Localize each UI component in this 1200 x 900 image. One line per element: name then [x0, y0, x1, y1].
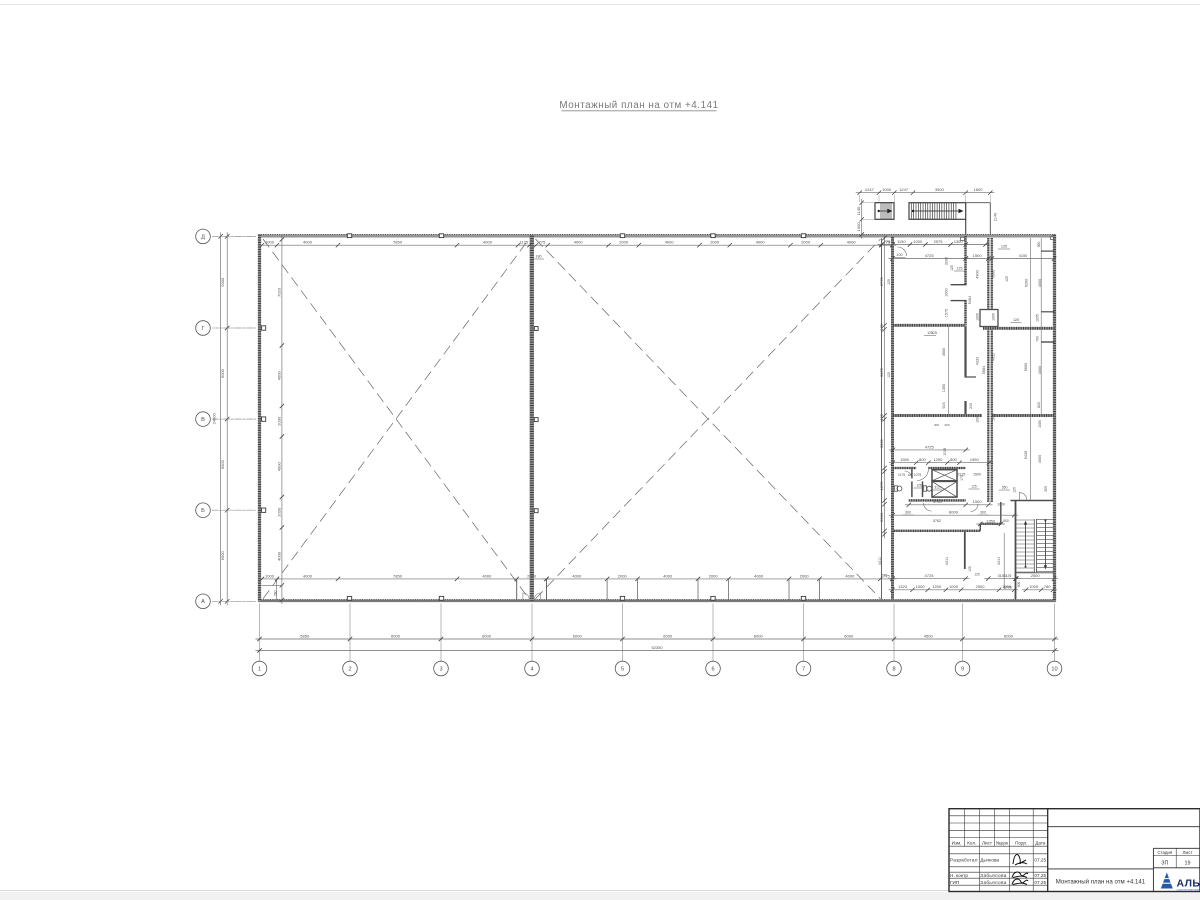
svg-text:243: 243 [969, 403, 973, 409]
svg-text:А: А [201, 599, 205, 605]
svg-text:2140: 2140 [993, 213, 997, 221]
svg-text:1000: 1000 [265, 240, 275, 245]
svg-text:125: 125 [1001, 245, 1007, 249]
svg-text:1975: 1975 [879, 481, 884, 491]
svg-text:Подп.: Подп. [1015, 840, 1027, 845]
svg-text:4000: 4000 [276, 462, 281, 472]
svg-text:6000: 6000 [391, 633, 401, 638]
svg-text:1095: 1095 [1035, 314, 1039, 322]
svg-text:125: 125 [974, 573, 980, 577]
svg-text:800: 800 [1017, 582, 1021, 588]
svg-text:1250: 1250 [933, 457, 943, 462]
svg-text:Кол.: Кол. [967, 840, 976, 845]
svg-text:1350: 1350 [986, 518, 996, 523]
svg-text:125: 125 [907, 473, 912, 477]
svg-text:5464: 5464 [968, 296, 972, 304]
svg-text:4000: 4000 [303, 240, 313, 245]
svg-text:775: 775 [881, 574, 887, 578]
svg-text:6000: 6000 [1004, 633, 1014, 638]
svg-text:7020: 7020 [276, 287, 281, 297]
svg-text:125: 125 [971, 485, 977, 489]
svg-text:1000: 1000 [992, 313, 996, 321]
svg-text:07.25: 07.25 [1034, 880, 1046, 885]
svg-text:4000: 4000 [303, 573, 313, 578]
svg-text:1140: 1140 [856, 206, 861, 215]
svg-text:4000: 4000 [847, 240, 857, 245]
svg-text:Изм.: Изм. [952, 840, 962, 845]
svg-text:2000: 2000 [527, 573, 537, 578]
svg-text:125: 125 [916, 484, 922, 488]
svg-text:2000: 2000 [618, 573, 628, 578]
svg-text:125: 125 [1005, 276, 1009, 282]
svg-text:№док: №док [996, 840, 1009, 845]
svg-text:3750: 3750 [933, 499, 943, 504]
svg-text:Разработал: Разработал [950, 858, 978, 863]
svg-text:6000: 6000 [844, 633, 854, 638]
svg-text:24000: 24000 [212, 413, 217, 425]
svg-text:1000: 1000 [1029, 584, 1039, 589]
svg-text:1175: 1175 [898, 473, 905, 477]
svg-text:300: 300 [934, 423, 939, 427]
svg-text:7: 7 [802, 666, 805, 672]
svg-text:1550: 1550 [900, 457, 910, 462]
svg-text:5875: 5875 [879, 367, 884, 377]
svg-text:4000: 4000 [665, 240, 675, 245]
svg-text:1200: 1200 [932, 584, 942, 589]
svg-text:1000: 1000 [913, 239, 923, 244]
svg-text:1075: 1075 [914, 473, 922, 477]
svg-text:1500: 1500 [973, 253, 983, 258]
svg-text:6000: 6000 [573, 633, 583, 638]
svg-text:Лист: Лист [1183, 850, 1194, 855]
svg-text:1080: 1080 [1038, 420, 1042, 428]
svg-text:В: В [201, 417, 205, 423]
svg-text:3339: 3339 [879, 438, 884, 448]
svg-text:4150: 4150 [1019, 254, 1027, 258]
svg-text:125: 125 [950, 265, 954, 271]
svg-text:4725: 4725 [925, 253, 935, 258]
svg-text:52350: 52350 [651, 645, 663, 650]
svg-text:4725: 4725 [925, 444, 935, 449]
svg-text:1000: 1000 [992, 413, 996, 421]
svg-text:6000: 6000 [663, 633, 673, 638]
svg-text:5: 5 [621, 666, 624, 672]
svg-text:4000: 4000 [276, 371, 281, 381]
svg-text:4725: 4725 [925, 573, 935, 578]
svg-text:100: 100 [896, 253, 902, 257]
svg-text:3: 3 [439, 666, 442, 672]
svg-text:Дычкова: Дычкова [980, 858, 999, 863]
svg-text:5762: 5762 [933, 519, 941, 523]
svg-text:Дата: Дата [1035, 840, 1046, 845]
svg-text:Стадия: Стадия [1157, 850, 1172, 855]
svg-text:125: 125 [968, 566, 972, 572]
svg-text:10: 10 [1051, 666, 1057, 672]
svg-text:800: 800 [950, 457, 957, 462]
svg-text:6200: 6200 [1025, 279, 1029, 287]
svg-text:4332: 4332 [976, 357, 980, 365]
svg-text:820: 820 [1037, 402, 1041, 408]
svg-text:4900: 4900 [976, 270, 980, 278]
svg-text:1000: 1000 [976, 313, 980, 321]
svg-text:07.25: 07.25 [1034, 873, 1046, 878]
svg-text:2000: 2000 [710, 240, 720, 245]
svg-text:1125: 1125 [519, 240, 528, 245]
svg-text:4411: 4411 [878, 557, 882, 565]
svg-text:2000: 2000 [619, 240, 629, 245]
svg-text:1320: 1320 [898, 584, 908, 589]
svg-text:125: 125 [887, 372, 891, 378]
svg-text:4652: 4652 [992, 353, 996, 361]
svg-text:2030: 2030 [276, 416, 281, 426]
svg-text:125: 125 [1013, 487, 1017, 493]
svg-text:1000: 1000 [265, 573, 275, 578]
svg-text:300: 300 [980, 511, 986, 515]
svg-text:915: 915 [942, 402, 946, 408]
svg-text:300: 300 [944, 423, 949, 427]
svg-text:Лист: Лист [982, 840, 993, 845]
svg-text:4900: 4900 [992, 270, 996, 278]
svg-text:4000: 4000 [845, 573, 855, 578]
svg-text:125: 125 [879, 323, 884, 330]
svg-text:4411: 4411 [997, 557, 1001, 565]
svg-text:5439: 5439 [1024, 451, 1028, 459]
svg-text:2030: 2030 [276, 507, 281, 517]
svg-text:Забьялова: Забьялова [980, 880, 1006, 885]
svg-text:780: 780 [274, 590, 278, 596]
svg-text:4000: 4000 [276, 551, 281, 561]
svg-text:1150: 1150 [897, 239, 906, 244]
svg-text:3500: 3500 [935, 187, 945, 192]
svg-text:5850: 5850 [300, 633, 310, 638]
svg-text:180: 180 [535, 255, 541, 259]
svg-text:7850: 7850 [393, 240, 403, 245]
svg-text:1500: 1500 [973, 473, 981, 477]
svg-text:07.25: 07.25 [1034, 858, 1046, 863]
svg-text:1600: 1600 [974, 187, 984, 192]
svg-text:1000: 1000 [945, 288, 949, 296]
svg-text:1700: 1700 [1004, 585, 1012, 589]
svg-text:2000: 2000 [879, 512, 884, 522]
svg-text:350: 350 [1002, 486, 1008, 490]
svg-text:2000: 2000 [800, 573, 810, 578]
svg-text:6000: 6000 [754, 633, 764, 638]
svg-text:ГИП: ГИП [950, 880, 959, 885]
svg-text:4000: 4000 [482, 573, 492, 578]
svg-text:3125: 3125 [934, 486, 942, 490]
svg-text:800: 800 [919, 457, 926, 462]
svg-text:Забьялова: Забьялова [980, 873, 1006, 878]
svg-text:2575: 2575 [934, 239, 944, 244]
svg-text:1000: 1000 [882, 187, 892, 192]
svg-text:1950: 1950 [970, 457, 980, 462]
svg-text:Д: Д [201, 234, 205, 240]
svg-text:800: 800 [1003, 519, 1009, 523]
svg-text:строительная компания: строительная компания [1177, 888, 1200, 891]
svg-text:5564: 5564 [982, 366, 986, 374]
svg-text:4500: 4500 [924, 633, 934, 638]
svg-text:2000: 2000 [801, 240, 811, 245]
svg-text:Б: Б [201, 508, 205, 514]
svg-text:3550: 3550 [942, 348, 946, 356]
svg-text:3200: 3200 [945, 257, 949, 265]
svg-text:Г: Г [201, 326, 204, 332]
svg-text:1300: 1300 [954, 239, 964, 244]
svg-text:775: 775 [539, 240, 546, 245]
svg-text:6000: 6000 [482, 633, 492, 638]
svg-text:2125: 2125 [958, 473, 966, 477]
svg-text:2500: 2500 [1031, 573, 1041, 578]
svg-text:Монтажный план на отм +4.141: Монтажный план на отм +4.141 [1056, 878, 1146, 885]
svg-text:1000: 1000 [856, 222, 861, 232]
svg-text:4000: 4000 [572, 573, 582, 578]
svg-text:125: 125 [957, 267, 963, 271]
svg-text:2000: 2000 [709, 573, 719, 578]
svg-text:4000: 4000 [756, 240, 766, 245]
svg-text:300: 300 [905, 511, 911, 515]
svg-text:5600: 5600 [1024, 363, 1028, 371]
svg-text:780: 780 [1044, 584, 1051, 589]
svg-text:ЗП: ЗП [1161, 861, 1168, 867]
svg-text:Н. контр: Н. контр [950, 873, 968, 878]
svg-text:2: 2 [348, 666, 351, 672]
svg-text:1: 1 [258, 666, 261, 672]
svg-text:9: 9 [961, 666, 964, 672]
svg-text:8000: 8000 [949, 510, 959, 515]
svg-text:4000: 4000 [1038, 455, 1042, 463]
svg-text:125: 125 [887, 279, 891, 285]
svg-text:4000: 4000 [1038, 279, 1042, 287]
svg-text:125: 125 [879, 413, 884, 420]
svg-text:700: 700 [1036, 336, 1040, 342]
svg-text:4000: 4000 [483, 240, 493, 245]
svg-text:7850: 7850 [393, 573, 403, 578]
svg-text:125: 125 [1006, 574, 1012, 578]
svg-text:19: 19 [1185, 861, 1191, 867]
svg-text:1247: 1247 [865, 187, 875, 192]
svg-text:125: 125 [931, 331, 937, 335]
svg-text:6: 6 [711, 666, 714, 672]
svg-text:4411: 4411 [945, 557, 949, 565]
svg-text:4000: 4000 [1038, 366, 1042, 374]
svg-text:1247: 1247 [899, 187, 909, 192]
svg-text:1575: 1575 [945, 309, 949, 317]
svg-text:8: 8 [892, 666, 895, 672]
svg-text:4000: 4000 [754, 573, 764, 578]
svg-text:125: 125 [1013, 318, 1019, 322]
svg-text:1500: 1500 [973, 499, 983, 504]
svg-text:4: 4 [530, 666, 533, 672]
svg-text:1000: 1000 [916, 584, 926, 589]
svg-text:980: 980 [1037, 242, 1041, 248]
svg-text:4000: 4000 [574, 240, 584, 245]
svg-text:1000: 1000 [976, 415, 980, 423]
svg-text:1350: 1350 [942, 384, 946, 392]
svg-text:5775: 5775 [879, 276, 884, 286]
svg-text:2039: 2039 [943, 448, 947, 456]
svg-text:Монтажный план на отм +4.141: Монтажный план на отм +4.141 [559, 100, 718, 111]
svg-text:4000: 4000 [663, 573, 673, 578]
svg-text:359: 359 [1044, 486, 1048, 492]
svg-text:2500: 2500 [976, 584, 986, 589]
svg-text:1000: 1000 [949, 584, 959, 589]
svg-text:1000: 1000 [997, 503, 1005, 507]
